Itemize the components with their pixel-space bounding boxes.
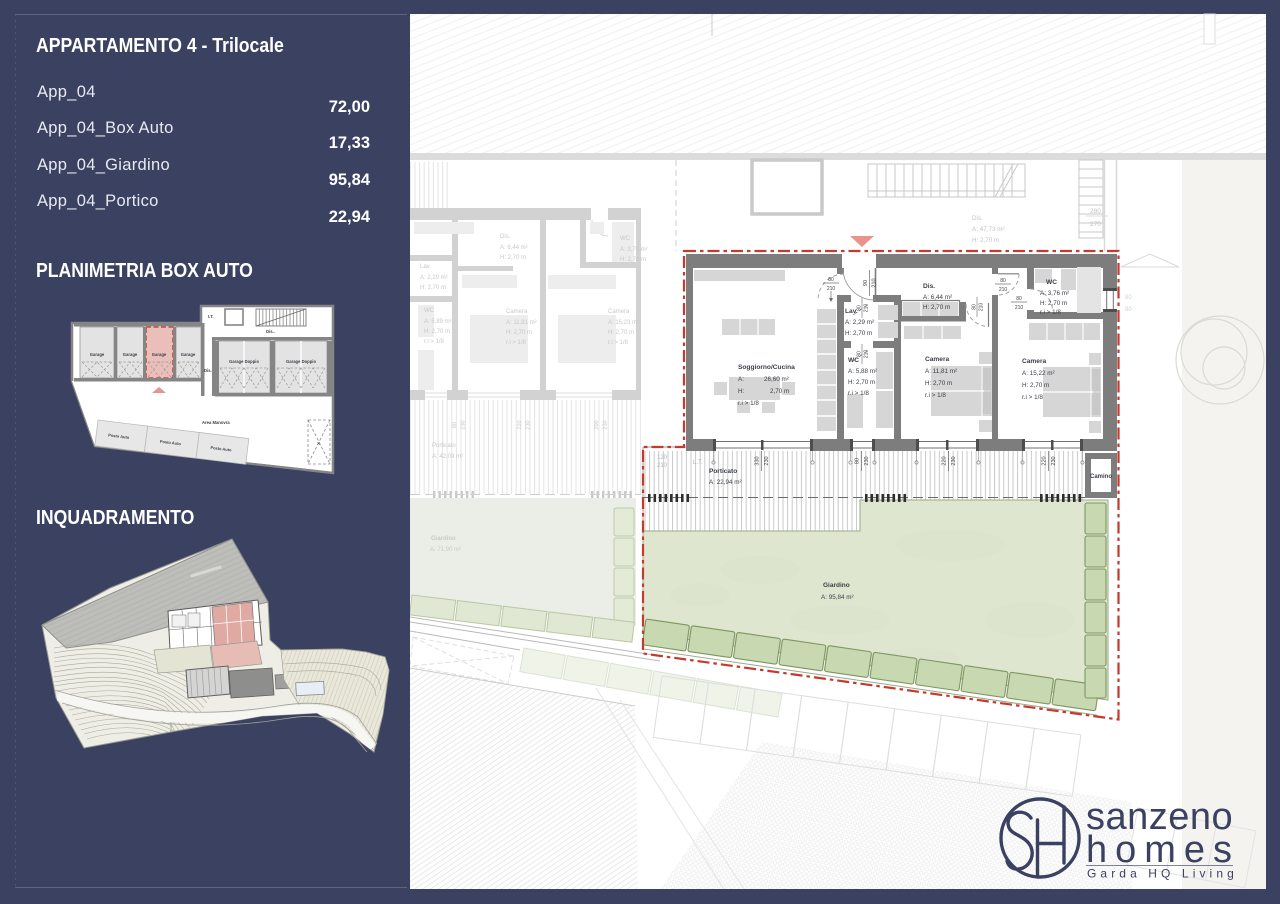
svg-text:H: 2,70 m: H: 2,70 m — [608, 330, 634, 336]
svg-text:80: 80 — [828, 277, 834, 283]
svg-text:Garage: Garage — [90, 352, 105, 357]
svg-text:230: 230 — [951, 456, 957, 465]
svg-text:2,70 m: 2,70 m — [770, 388, 789, 395]
svg-text:A: 42,09 m²: A: 42,09 m² — [432, 454, 463, 460]
svg-text:A: 6,44 m²: A: 6,44 m² — [500, 245, 528, 251]
svg-text:A: 22,94 m²: A: 22,94 m² — [709, 479, 742, 486]
svg-text:H: 2,70 m: H: 2,70 m — [420, 285, 446, 291]
svg-text:Giardino: Giardino — [431, 536, 456, 542]
svg-text:Garage Doppio: Garage Doppio — [286, 359, 316, 364]
svg-text:WC: WC — [620, 236, 631, 242]
svg-text:H: 2,70 m: H: 2,70 m — [500, 255, 526, 261]
svg-text:80: 80 — [1000, 278, 1006, 284]
svg-text:210: 210 — [999, 287, 1008, 293]
svg-text:200: 200 — [594, 420, 600, 429]
svg-text:80: 80 — [1125, 295, 1132, 301]
svg-text:H: 2,70 m: H: 2,70 m — [972, 237, 999, 244]
svg-text:A: 2,29 m²: A: 2,29 m² — [420, 275, 448, 281]
svg-text:Dis.: Dis. — [204, 368, 212, 373]
svg-text:Dis..: Dis.. — [266, 329, 275, 334]
svg-text:Garage: Garage — [181, 352, 196, 357]
svg-text:80: 80 — [452, 422, 458, 428]
svg-text:210: 210 — [872, 278, 878, 287]
svg-text:WC: WC — [1046, 279, 1057, 286]
svg-text:I.T.: I.T. — [208, 314, 214, 319]
svg-text:210: 210 — [979, 303, 985, 312]
svg-text:A: 95,84 m²: A: 95,84 m² — [821, 594, 854, 601]
svg-text:230: 230 — [864, 456, 870, 465]
svg-text:270: 270 — [1090, 221, 1101, 228]
svg-text:r.i > 1/8: r.i > 1/8 — [1022, 394, 1043, 401]
svg-text:Dis.: Dis. — [500, 234, 511, 240]
svg-text:r.i > 1/8: r.i > 1/8 — [424, 339, 445, 345]
svg-text:230: 230 — [461, 420, 467, 429]
svg-text:A: 15,23 m²: A: 15,23 m² — [608, 320, 639, 326]
svg-text:A: 2,29 m²: A: 2,29 m² — [845, 319, 874, 326]
svg-text:X: X — [317, 441, 320, 446]
svg-text:Garage: Garage — [123, 352, 138, 357]
svg-text:Giardino: Giardino — [823, 582, 850, 589]
svg-text:H: 2,70 m: H: 2,70 m — [848, 379, 875, 386]
svg-text:A: 5,89 m²: A: 5,89 m² — [424, 319, 452, 325]
svg-text:H: 2,70 m: H: 2,70 m — [620, 257, 646, 263]
svg-text:H: 2,70 m: H: 2,70 m — [1022, 382, 1049, 389]
svg-text:220: 220 — [1042, 456, 1048, 465]
svg-text:220: 220 — [517, 420, 523, 429]
svg-text:WC: WC — [848, 357, 859, 364]
svg-text:A: 15,22 m²: A: 15,22 m² — [1022, 370, 1055, 377]
svg-text:A:: A: — [738, 376, 744, 383]
svg-text:26,60 m²: 26,60 m² — [764, 376, 789, 383]
svg-text:230: 230 — [764, 456, 770, 465]
svg-text:Camino: Camino — [1090, 474, 1112, 480]
svg-text:WC: WC — [424, 308, 435, 314]
svg-text:A: 11,81 m²: A: 11,81 m² — [925, 368, 957, 375]
svg-text:280: 280 — [1090, 208, 1101, 215]
svg-text:A: 71,90 m²: A: 71,90 m² — [430, 547, 461, 553]
svg-text:A: 6,44 m²: A: 6,44 m² — [923, 294, 952, 301]
svg-text:r.i > 1/8: r.i > 1/8 — [608, 340, 629, 346]
svg-text:Dis.: Dis. — [923, 283, 935, 290]
svg-text:r.i > 1/8: r.i > 1/8 — [1040, 309, 1061, 316]
svg-text:Soggiorno/Cucina: Soggiorno/Cucina — [738, 364, 795, 371]
svg-text:r.i > 1/8: r.i > 1/8 — [848, 390, 869, 397]
svg-text:Camera: Camera — [1022, 358, 1047, 365]
svg-text:H: 2,70 m: H: 2,70 m — [925, 380, 952, 387]
svg-text:120: 120 — [657, 455, 668, 461]
svg-text:H: 2,70 m: H: 2,70 m — [923, 304, 950, 311]
svg-text:L.T.: L.T. — [693, 460, 703, 466]
svg-text:H:: H: — [738, 388, 745, 395]
svg-text:Porticato: Porticato — [709, 468, 737, 475]
svg-text:80: 80 — [972, 304, 978, 310]
svg-text:220: 220 — [942, 456, 948, 465]
svg-text:90: 90 — [863, 280, 869, 286]
svg-text:80: 80 — [1125, 307, 1132, 313]
svg-text:210: 210 — [657, 463, 668, 469]
svg-text:Garage: Garage — [152, 352, 167, 357]
svg-text:Garage Doppio: Garage Doppio — [229, 359, 259, 364]
svg-text:Garda HQ Living: Garda HQ Living — [1087, 867, 1238, 881]
svg-text:210: 210 — [864, 304, 870, 313]
svg-text:homes: homes — [1086, 829, 1240, 871]
svg-text:Area Manovra: Area Manovra — [202, 420, 230, 425]
svg-text:Camera: Camera — [506, 309, 528, 315]
svg-text:r.i > 1/8: r.i > 1/8 — [506, 340, 527, 346]
svg-text:H: 2,70 m: H: 2,70 m — [845, 330, 872, 337]
svg-text:80: 80 — [857, 351, 863, 357]
svg-text:330: 330 — [755, 456, 761, 465]
svg-text:H: 2,70 m: H: 2,70 m — [506, 330, 532, 336]
svg-text:H: 2,70 m: H: 2,70 m — [424, 329, 450, 335]
svg-text:A: 3,76 m²: A: 3,76 m² — [620, 247, 648, 253]
svg-text:Lav.: Lav. — [420, 264, 431, 270]
svg-text:A: 47,73 m²: A: 47,73 m² — [972, 226, 1005, 233]
svg-text:A: 3,76 m²: A: 3,76 m² — [1040, 290, 1069, 297]
svg-text:H: 2,70 m: H: 2,70 m — [1040, 300, 1067, 307]
svg-text:210: 210 — [864, 350, 870, 359]
svg-text:230: 230 — [1051, 456, 1057, 465]
svg-text:80: 80 — [1016, 296, 1022, 302]
svg-text:Porticato: Porticato — [432, 443, 456, 449]
svg-text:A: 5,88 m²: A: 5,88 m² — [848, 368, 877, 375]
svg-text:80: 80 — [857, 305, 863, 311]
svg-text:210: 210 — [1015, 305, 1024, 311]
svg-text:r.i > 1/8: r.i > 1/8 — [925, 392, 946, 399]
svg-text:230: 230 — [603, 420, 609, 429]
svg-text:Dis.: Dis. — [972, 215, 983, 222]
svg-text:Camera: Camera — [925, 356, 950, 363]
svg-text:A: 11,81 m²: A: 11,81 m² — [506, 320, 537, 326]
svg-text:80: 80 — [855, 458, 861, 464]
svg-text:230: 230 — [526, 420, 532, 429]
svg-text:r.i > 1/8: r.i > 1/8 — [738, 400, 759, 407]
svg-text:Camera: Camera — [608, 309, 630, 315]
